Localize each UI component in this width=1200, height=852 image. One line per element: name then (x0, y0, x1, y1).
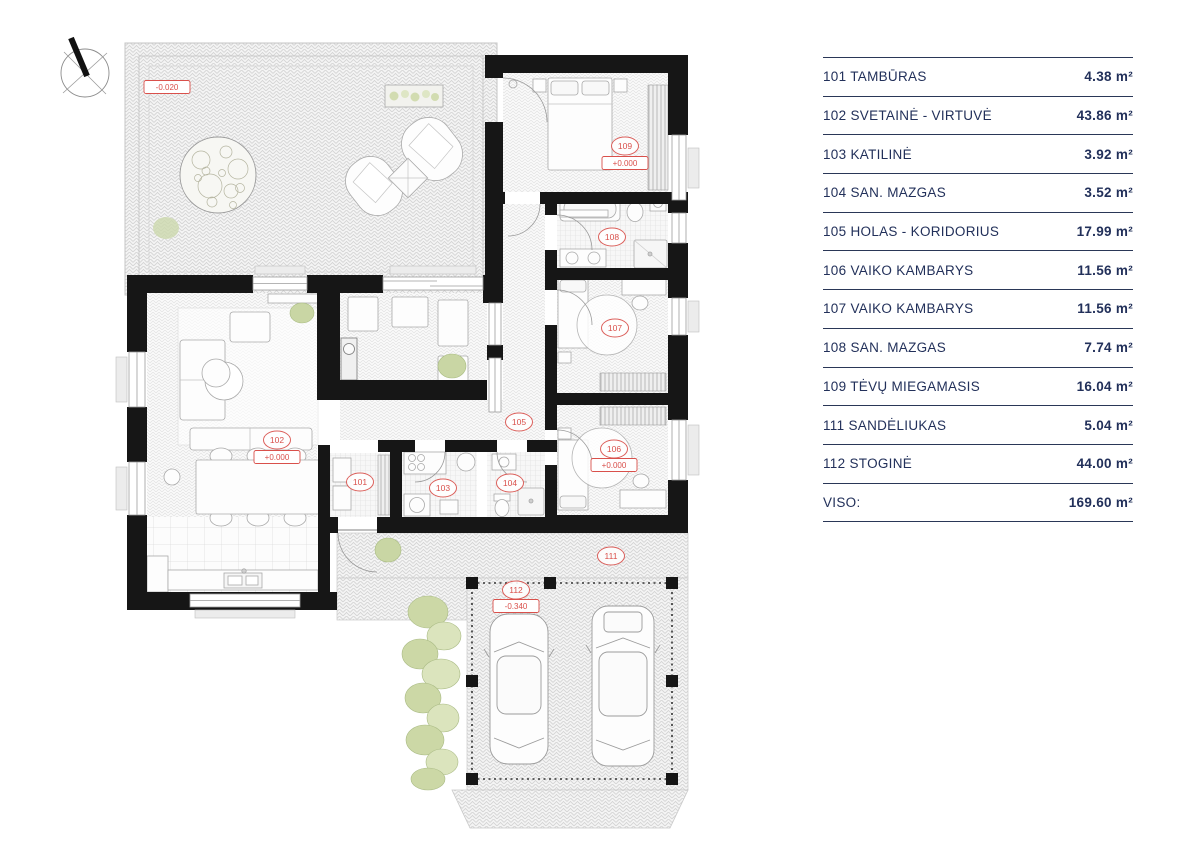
room-name: 111 SANDĖLIUKAS (823, 418, 946, 433)
desk-chair (632, 296, 648, 310)
utility-sink (440, 500, 458, 514)
armchair (230, 312, 270, 342)
level-label-terrace: -0.020 (144, 81, 190, 94)
svg-text:+0.000: +0.000 (613, 159, 638, 168)
desk-chair (633, 474, 649, 488)
legend-row-106: 106 VAIKO KAMBARYS 11.56 m² (823, 250, 1133, 289)
coffee-table (202, 359, 230, 387)
room-name: 105 HOLAS - KORIDORIUS (823, 224, 999, 239)
legend-row-105: 105 HOLAS - KORIDORIUS 17.99 m² (823, 212, 1133, 251)
room-label-103: 103 (430, 479, 457, 497)
room-label-107: 107 (602, 319, 629, 337)
svg-text:102: 102 (270, 435, 284, 445)
room-area: 4.38 m² (1084, 69, 1133, 84)
nightstand (533, 79, 546, 92)
legend-row-103: 103 KATILINĖ 3.92 m² (823, 134, 1133, 173)
room-area: 3.92 m² (1084, 147, 1133, 162)
room-area: 43.86 m² (1077, 108, 1133, 123)
svg-text:103: 103 (436, 483, 450, 493)
floor-plan-drawing: -0.020 101 102 +0.000 103 104 105 106 (0, 0, 760, 852)
room-area: 11.56 m² (1077, 301, 1133, 316)
floor-plan-page: -0.020 101 102 +0.000 103 104 105 106 (0, 0, 1200, 852)
room-area: 3.52 m² (1084, 185, 1133, 200)
hall-cabinet (333, 486, 351, 510)
stove-flue (344, 344, 355, 355)
bushes (402, 596, 461, 790)
room-name: 109 TĖVŲ MIEGAMASIS (823, 379, 980, 394)
toilet (495, 500, 509, 517)
north-arrow-compass (61, 38, 109, 97)
svg-text:112: 112 (509, 585, 523, 595)
grass-tuft (153, 217, 179, 239)
room-legend-table: 101 TAMBŪRAS 4.38 m² 102 SVETAINĖ - VIRT… (823, 57, 1133, 522)
chaise (190, 428, 312, 450)
room-label-101: 101 (347, 473, 374, 491)
car (586, 606, 660, 766)
legend-row-101: 101 TAMBŪRAS 4.38 m² (823, 57, 1133, 96)
room-label-111: 111 (598, 547, 625, 565)
total-area: 169.60 m² (1069, 495, 1133, 510)
room-name: 104 SAN. MAZGAS (823, 185, 946, 200)
svg-text:106: 106 (607, 444, 621, 454)
room-name: 108 SAN. MAZGAS (823, 340, 946, 355)
room-name: 101 TAMBŪRAS (823, 69, 927, 84)
legend-row-104: 104 SAN. MAZGAS 3.52 m² (823, 173, 1133, 212)
room-name: 102 SVETAINĖ - VIRTUVĖ (823, 108, 992, 123)
svg-text:104: 104 (503, 478, 517, 488)
dining-table (196, 460, 320, 514)
svg-text:109: 109 (618, 141, 632, 151)
svg-text:108: 108 (605, 232, 619, 242)
desk (620, 490, 666, 508)
legend-row-total: VISO: 169.60 m² (823, 483, 1133, 522)
room-area: 17.99 m² (1077, 224, 1133, 239)
pillow (560, 496, 586, 508)
svg-text:+0.000: +0.000 (602, 461, 627, 470)
terrace-tree (180, 137, 256, 213)
legend-row-111: 111 SANDĖLIUKAS 5.04 m² (823, 405, 1133, 444)
legend-row-102: 102 SVETAINĖ - VIRTUVĖ 43.86 m² (823, 96, 1133, 135)
toilet (627, 203, 643, 222)
room-name: 112 STOGINĖ (823, 456, 912, 471)
terrace-planter (385, 85, 443, 107)
double-vanity (560, 249, 606, 267)
driveway (452, 790, 688, 828)
room-label-105: 105 (506, 413, 533, 431)
floor-lamp (164, 469, 180, 485)
svg-text:-0.020: -0.020 (156, 83, 179, 92)
nightstand (614, 79, 627, 92)
room-label-108: 108 (599, 228, 626, 246)
room-label-104: 104 (497, 474, 524, 492)
svg-text:105: 105 (512, 417, 526, 427)
pillow (560, 280, 586, 292)
armchair (392, 297, 428, 327)
kitchen-cabinet (147, 556, 168, 592)
round-rug (572, 428, 632, 488)
svg-text:101: 101 (353, 477, 367, 487)
boiler (457, 453, 475, 471)
armchair (438, 300, 468, 346)
room-name: 107 VAIKO KAMBARYS (823, 301, 973, 316)
car (484, 614, 554, 764)
room-area: 7.74 m² (1084, 340, 1133, 355)
armchair (348, 297, 378, 331)
legend-row-107: 107 VAIKO KAMBARYS 11.56 m² (823, 289, 1133, 328)
room-area: 11.56 m² (1077, 263, 1133, 278)
svg-text:+0.000: +0.000 (265, 453, 290, 462)
total-label: VISO: (823, 495, 861, 510)
svg-text:111: 111 (605, 551, 618, 561)
legend-row-112: 112 STOGINĖ 44.00 m² (823, 444, 1133, 483)
nightstand (558, 428, 571, 439)
legend-row-108: 108 SAN. MAZGAS 7.74 m² (823, 328, 1133, 367)
sink (492, 454, 516, 470)
room-name: 103 KATILINĖ (823, 147, 912, 162)
room-area: 16.04 m² (1077, 379, 1133, 394)
faucet (242, 569, 246, 573)
nightstand (558, 352, 571, 363)
pillow (551, 81, 578, 95)
legend-row-109: 109 TĖVŲ MIEGAMASIS 16.04 m² (823, 367, 1133, 406)
svg-text:-0.340: -0.340 (505, 602, 528, 611)
room-area: 5.04 m² (1084, 418, 1133, 433)
svg-text:107: 107 (608, 323, 622, 333)
bench (560, 210, 608, 217)
pillow (582, 81, 609, 95)
room-area: 44.00 m² (1077, 456, 1133, 471)
room-name: 106 VAIKO KAMBARYS (823, 263, 973, 278)
